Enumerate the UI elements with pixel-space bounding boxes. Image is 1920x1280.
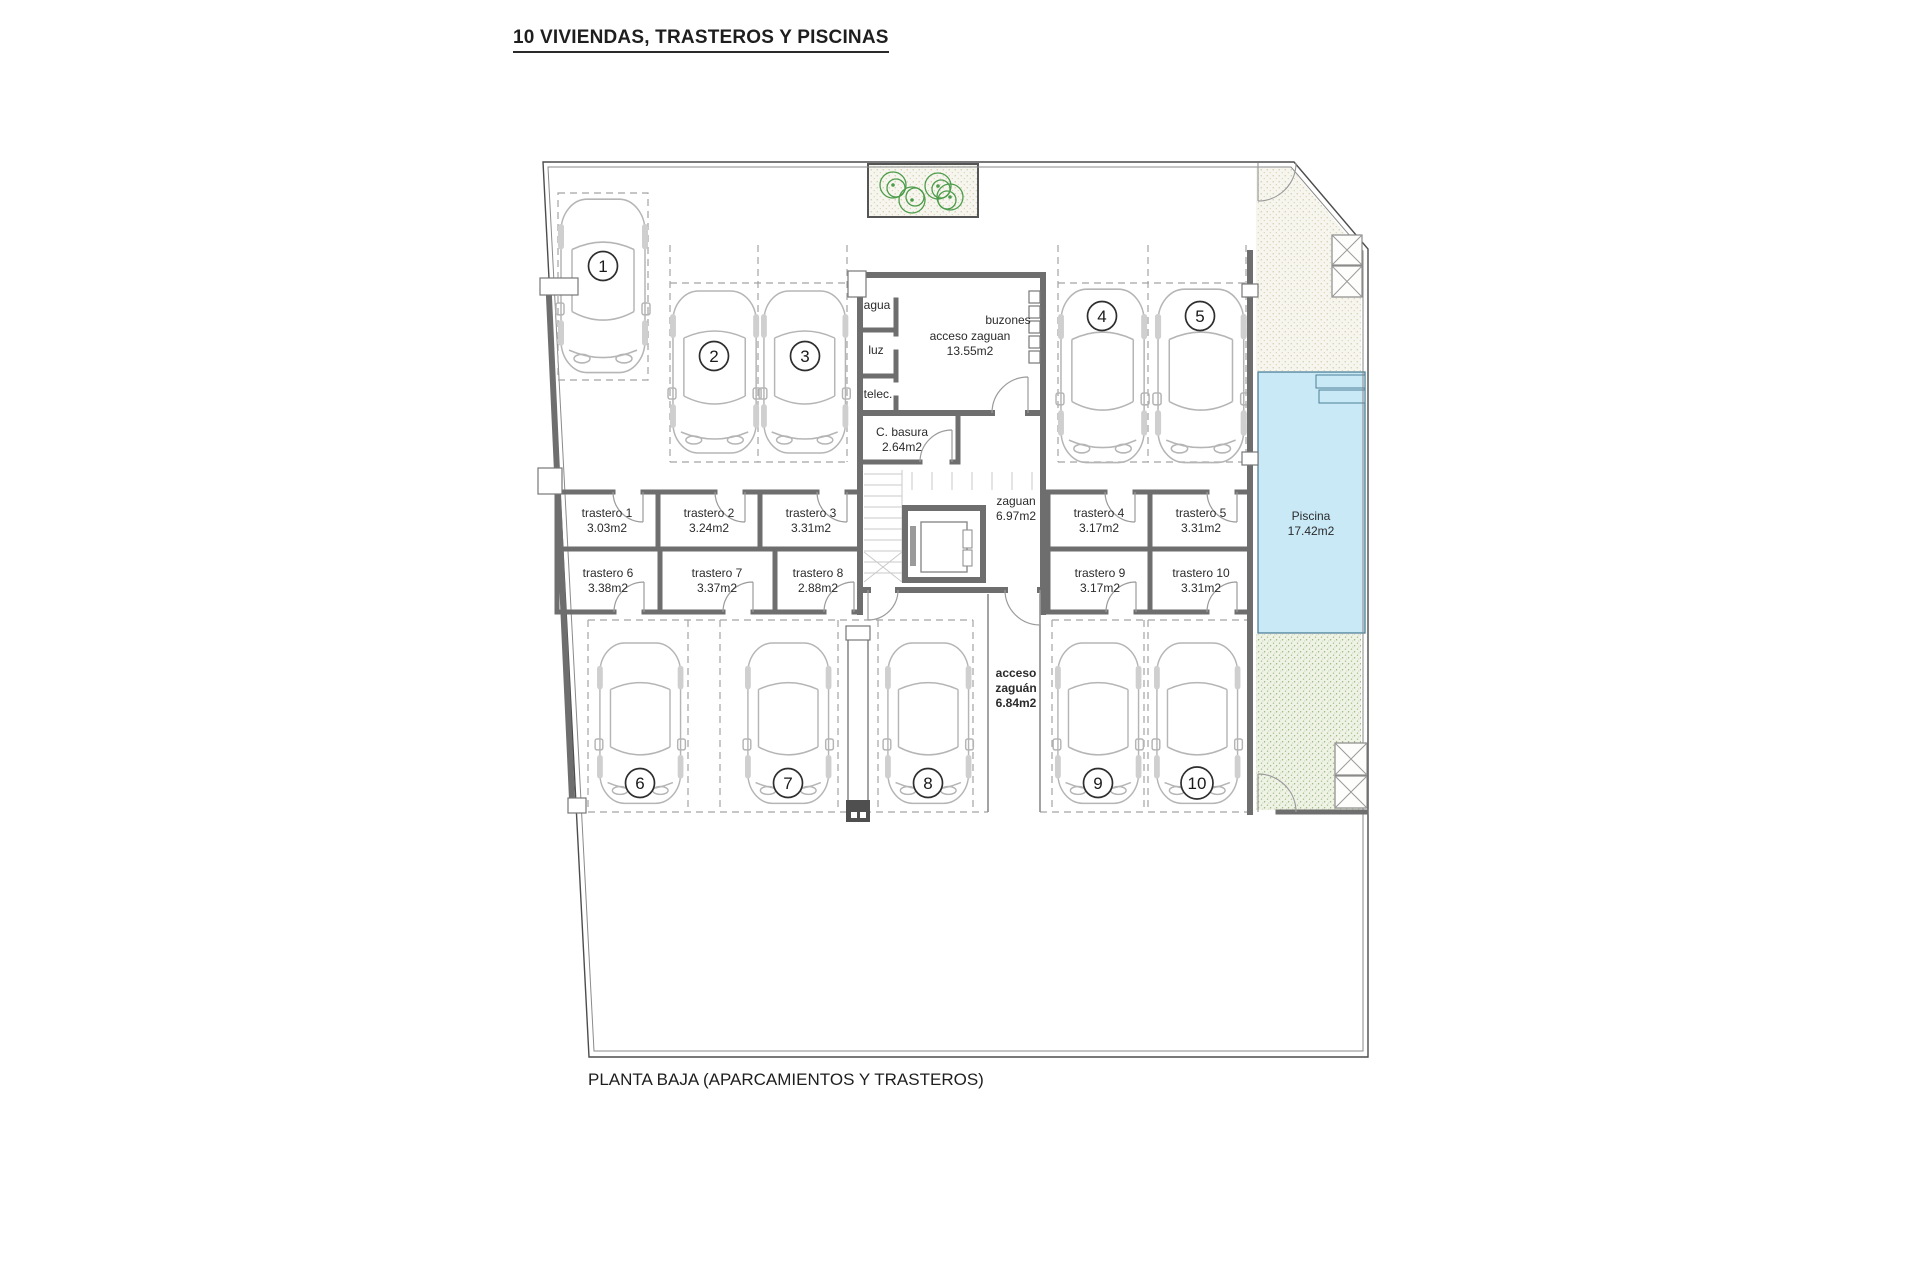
trastero-7-name: trastero 7 [692,566,743,580]
svg-text:6: 6 [635,774,644,793]
svg-text:10: 10 [1188,774,1207,793]
label-corridor-2: zaguán [995,681,1036,695]
parking-number-6: 6 [626,769,655,798]
label-pool-area: 17.42m2 [1288,524,1335,538]
svg-text:8: 8 [923,774,932,793]
svg-text:4: 4 [1097,307,1106,326]
pool-step [1316,375,1365,388]
trastero-4-name: trastero 4 [1074,506,1125,520]
label-corridor-1: acceso [996,666,1037,680]
label-trash-room: C. basura [876,425,928,439]
site-areas [868,164,1365,810]
pool-step [1319,390,1365,403]
label-lobby-area: 6.97m2 [996,509,1036,523]
parking-number-4: 4 [1088,302,1117,331]
label-mailboxes: buzones [985,313,1030,327]
parking-number-3: 3 [791,342,820,371]
label-lobby: zaguan [996,494,1035,508]
trastero-4-area: 3.17m2 [1079,521,1119,535]
label-entrance-hall-area: 13.55m2 [947,344,994,358]
label-trash-room-area: 2.64m2 [882,440,922,454]
svg-text:7: 7 [783,774,792,793]
svg-text:3: 3 [800,347,809,366]
trastero-6-name: trastero 6 [583,566,634,580]
trastero-7-area: 3.37m2 [697,581,737,595]
trastero-5-area: 3.31m2 [1181,521,1221,535]
car-3 [759,291,850,453]
trastero-2-area: 3.24m2 [689,521,729,535]
svg-text:1: 1 [598,257,607,276]
trastero-6-area: 3.38m2 [588,581,628,595]
trastero-5-name: trastero 5 [1176,506,1227,520]
trastero-10-name: trastero 10 [1172,566,1230,580]
trastero-8-area: 2.88m2 [798,581,838,595]
label-entrance-hall: acceso zaguan [930,329,1011,343]
trastero-8-name: trastero 8 [793,566,844,580]
trastero-10-area: 3.31m2 [1181,581,1221,595]
trastero-2-name: trastero 2 [684,506,735,520]
parking-number-5: 5 [1186,302,1215,331]
trastero-1-name: trastero 1 [582,506,633,520]
label-telec: telec. [864,387,893,401]
mailboxes [1029,291,1040,363]
label-luz: luz [868,343,883,357]
trastero-9-name: trastero 9 [1075,566,1126,580]
drawing-caption: PLANTA BAJA (APARCAMIENTOS Y TRASTEROS) [588,1070,984,1090]
parking-number-10: 10 [1181,767,1213,799]
svg-text:2: 2 [709,347,718,366]
car-2 [668,291,761,453]
trastero-3-area: 3.31m2 [791,521,831,535]
label-agua: agua [864,298,891,312]
label-corridor-3: 6.84m2 [996,696,1037,710]
trastero-9-area: 3.17m2 [1080,581,1120,595]
label-pool: Piscina [1292,509,1331,523]
parking-number-1: 1 [589,252,618,281]
trastero-3-name: trastero 3 [786,506,837,520]
svg-text:5: 5 [1195,307,1204,326]
door-swings [613,163,1296,812]
parking-stall-lines [558,193,1250,812]
parking-number-2: 2 [700,342,729,371]
trastero-1-area: 3.03m2 [587,521,627,535]
elevator [905,508,983,580]
svg-text:9: 9 [1093,774,1102,793]
parking-number-9: 9 [1084,769,1113,798]
pool-area [1258,372,1365,633]
parking-number-7: 7 [774,769,803,798]
parking-number-8: 8 [914,769,943,798]
page: 10 VIVIENDAS, TRASTEROS Y PISCINAS [0,0,1920,1280]
